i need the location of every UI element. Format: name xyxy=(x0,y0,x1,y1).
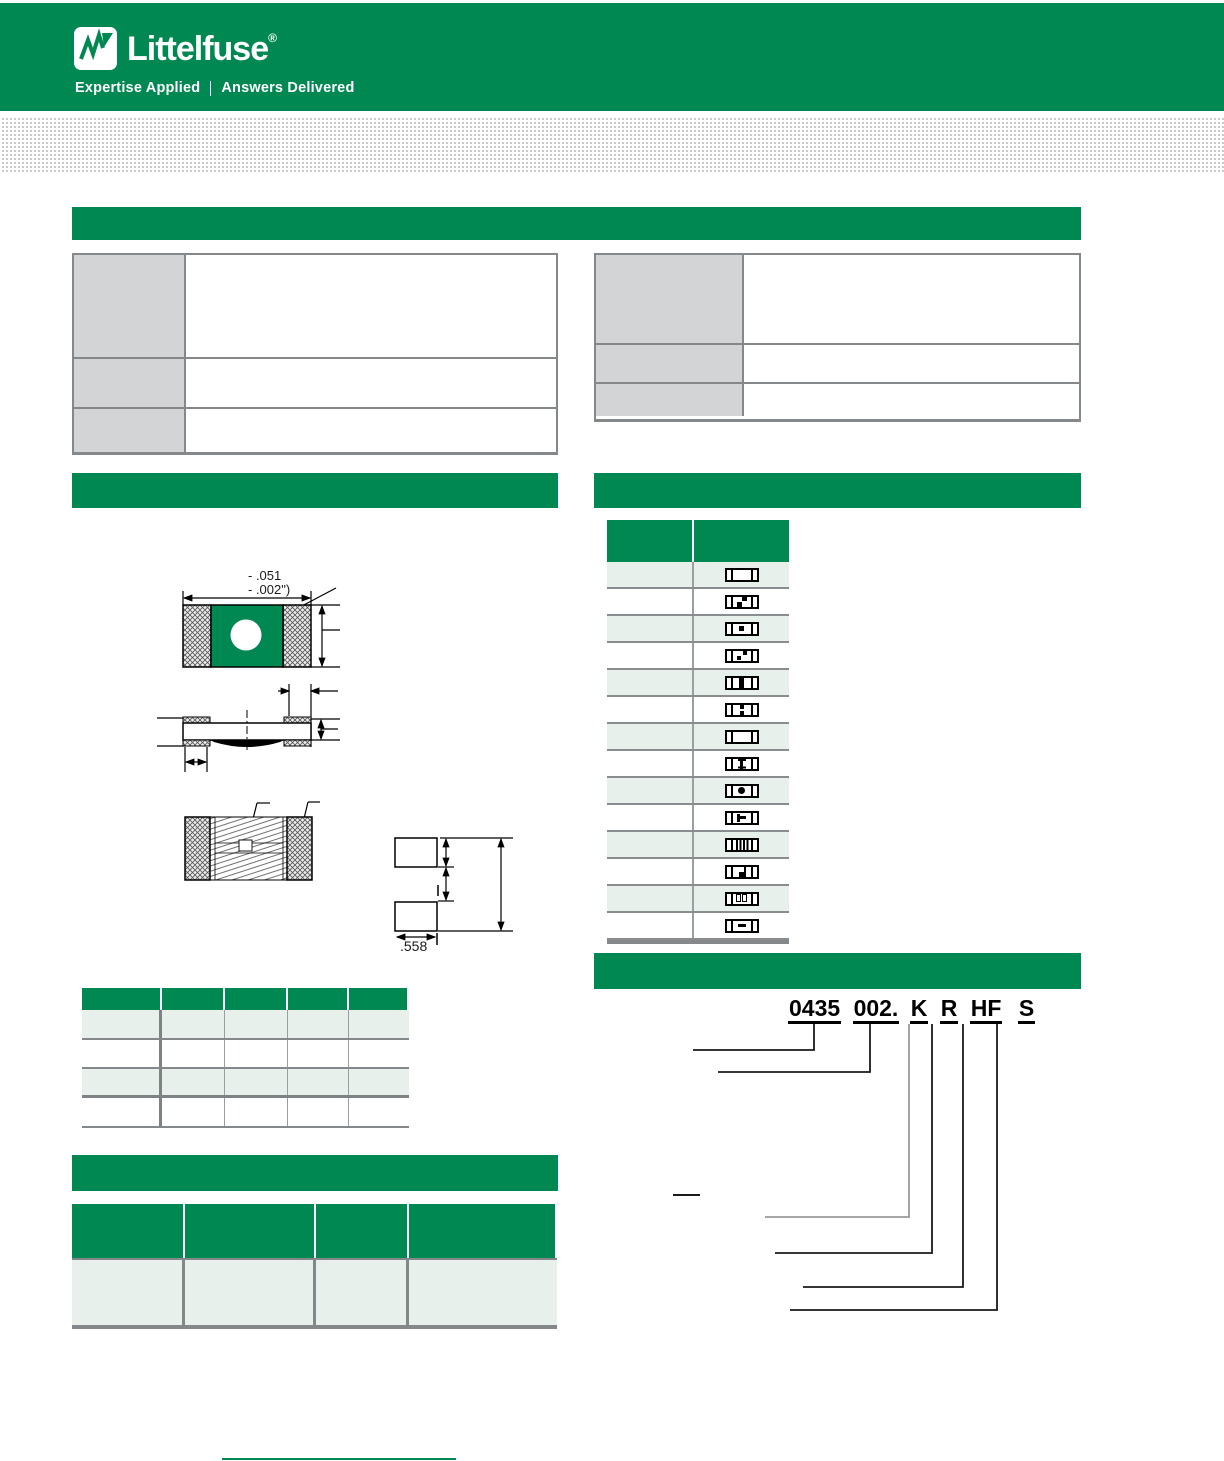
lightning-bolt-icon xyxy=(74,27,117,70)
section-bar-dimensions xyxy=(72,473,558,508)
marking-row xyxy=(607,859,789,886)
table-row xyxy=(72,1258,557,1325)
header-cell xyxy=(349,988,407,1010)
dotted-pattern-band xyxy=(0,118,1224,172)
marking-row xyxy=(607,724,789,751)
row-label-cell xyxy=(596,384,744,416)
row-label-cell xyxy=(596,255,744,343)
fuse-marking-icon xyxy=(725,568,759,582)
marking-row xyxy=(607,697,789,724)
row-value-cell xyxy=(186,359,556,407)
marking-row xyxy=(607,886,789,913)
registered-trademark: ® xyxy=(268,31,276,45)
table-row xyxy=(596,255,1079,343)
solder-pad-bottom xyxy=(395,902,437,931)
marking-table-header xyxy=(607,520,789,562)
table-bottom-bar xyxy=(607,940,789,944)
row-label-cell xyxy=(74,359,186,407)
brand-header-band: Littelfuse® Expertise Applied Answers De… xyxy=(0,3,1224,111)
section-bar-part-numbering xyxy=(594,953,1081,989)
fuse-marking-icon xyxy=(725,676,759,690)
fuse-marking-icon xyxy=(725,757,759,771)
brand-tagline: Expertise Applied Answers Delivered xyxy=(75,80,355,96)
fuse-top-view: - .051 - .002") xyxy=(183,568,340,667)
footer-divider xyxy=(222,1458,456,1460)
section-bar-marking xyxy=(594,473,1081,508)
header-cell xyxy=(72,1204,183,1258)
row-value-cell xyxy=(186,409,556,452)
fuse-marking-icon xyxy=(725,811,759,825)
fuse-marking-icon xyxy=(725,730,759,744)
section-bar-top xyxy=(72,207,1081,240)
pad-width-label: .558 xyxy=(400,938,427,954)
table-row xyxy=(82,1010,409,1040)
marking-dot xyxy=(231,620,262,651)
row-value-cell xyxy=(744,345,1079,382)
table-row xyxy=(74,255,556,357)
header-cell xyxy=(185,1204,314,1258)
tagline-left: Expertise Applied xyxy=(75,80,200,96)
part-number-segment: S xyxy=(1018,995,1035,1024)
table-row xyxy=(74,407,556,452)
fuse-marking-icon xyxy=(725,595,759,609)
table-row xyxy=(82,1069,409,1098)
part-number-segment: R xyxy=(940,995,959,1024)
brand-name: Littelfuse® xyxy=(127,30,276,69)
header-cell xyxy=(607,520,692,562)
fuse-marking-icon xyxy=(725,622,759,636)
tagline-divider xyxy=(210,81,211,96)
fuse-marking-icon xyxy=(725,838,759,852)
end-cap-right xyxy=(287,817,312,880)
header-cell xyxy=(225,988,286,1010)
solder-pad-top xyxy=(395,838,437,867)
pad-layout: .558 xyxy=(395,838,513,954)
marking-row xyxy=(607,832,789,859)
marking-table-body xyxy=(607,562,789,940)
header-cell xyxy=(694,520,789,562)
table-header-row xyxy=(72,1204,557,1258)
row-label-cell xyxy=(596,345,744,382)
header-cell xyxy=(409,1204,555,1258)
brand-name-text: Littelfuse xyxy=(127,30,268,68)
fuse-marking-icon xyxy=(725,865,759,879)
part-number-example: 0435 002. K R HF S xyxy=(788,995,1035,1024)
fuse-side-view xyxy=(157,710,340,772)
marking-row xyxy=(607,751,789,778)
row-value-cell xyxy=(744,255,1079,343)
part-number-segment: K xyxy=(910,995,929,1024)
spec-table-right xyxy=(594,253,1081,422)
fuse-marking-icon xyxy=(725,919,759,933)
element-window xyxy=(239,840,252,851)
spec-table-left xyxy=(72,253,558,455)
fuse-marking-icon xyxy=(725,703,759,717)
marking-row xyxy=(607,913,789,940)
dim-width-label-2: - .002") xyxy=(248,582,290,597)
packaging-table xyxy=(72,1204,557,1329)
table-row xyxy=(82,1040,409,1069)
end-cap-left xyxy=(183,605,211,667)
marking-row xyxy=(607,643,789,670)
header-cell xyxy=(316,1204,407,1258)
row-value-cell xyxy=(186,255,556,357)
marking-row xyxy=(607,616,789,643)
fuse-marking-icon xyxy=(725,784,759,798)
electrical-table xyxy=(82,988,409,1128)
fuse-bottom-view xyxy=(185,802,320,880)
header-cell xyxy=(162,988,223,1010)
part-number-segment: 0435 xyxy=(788,995,841,1024)
table-header-row xyxy=(82,988,409,1010)
table-row xyxy=(596,382,1079,416)
table-bottom-bar xyxy=(72,1325,557,1329)
marking-row xyxy=(607,670,789,697)
row-label-cell xyxy=(74,255,186,357)
row-label-cell xyxy=(74,409,186,452)
header-cell xyxy=(82,988,160,1010)
part-number-segment: 002. xyxy=(853,995,900,1024)
table-row xyxy=(74,357,556,407)
marking-row xyxy=(607,562,789,589)
marking-row xyxy=(607,778,789,805)
fuse-marking-icon xyxy=(725,649,759,663)
end-cap-right xyxy=(283,605,311,667)
section-bar-packaging xyxy=(72,1155,558,1191)
row-value-cell xyxy=(744,384,1079,416)
littelfuse-logo-icon xyxy=(74,27,117,70)
dimension-drawing: - .051 - .002") xyxy=(140,555,560,955)
part-number-callout-lines xyxy=(660,1022,1020,1322)
part-number-segment: HF xyxy=(970,995,1003,1024)
tagline-right: Answers Delivered xyxy=(221,80,354,96)
marking-row xyxy=(607,805,789,832)
table-row xyxy=(596,343,1079,382)
header-cell xyxy=(288,988,347,1010)
marking-code-table xyxy=(607,520,789,944)
marking-row xyxy=(607,589,789,616)
table-row xyxy=(82,1098,409,1128)
dim-width-label-1: - .051 xyxy=(248,568,281,583)
fuse-marking-icon xyxy=(725,892,759,906)
datasheet-page: Littelfuse® Expertise Applied Answers De… xyxy=(0,0,1224,1461)
end-cap-left xyxy=(185,817,210,880)
